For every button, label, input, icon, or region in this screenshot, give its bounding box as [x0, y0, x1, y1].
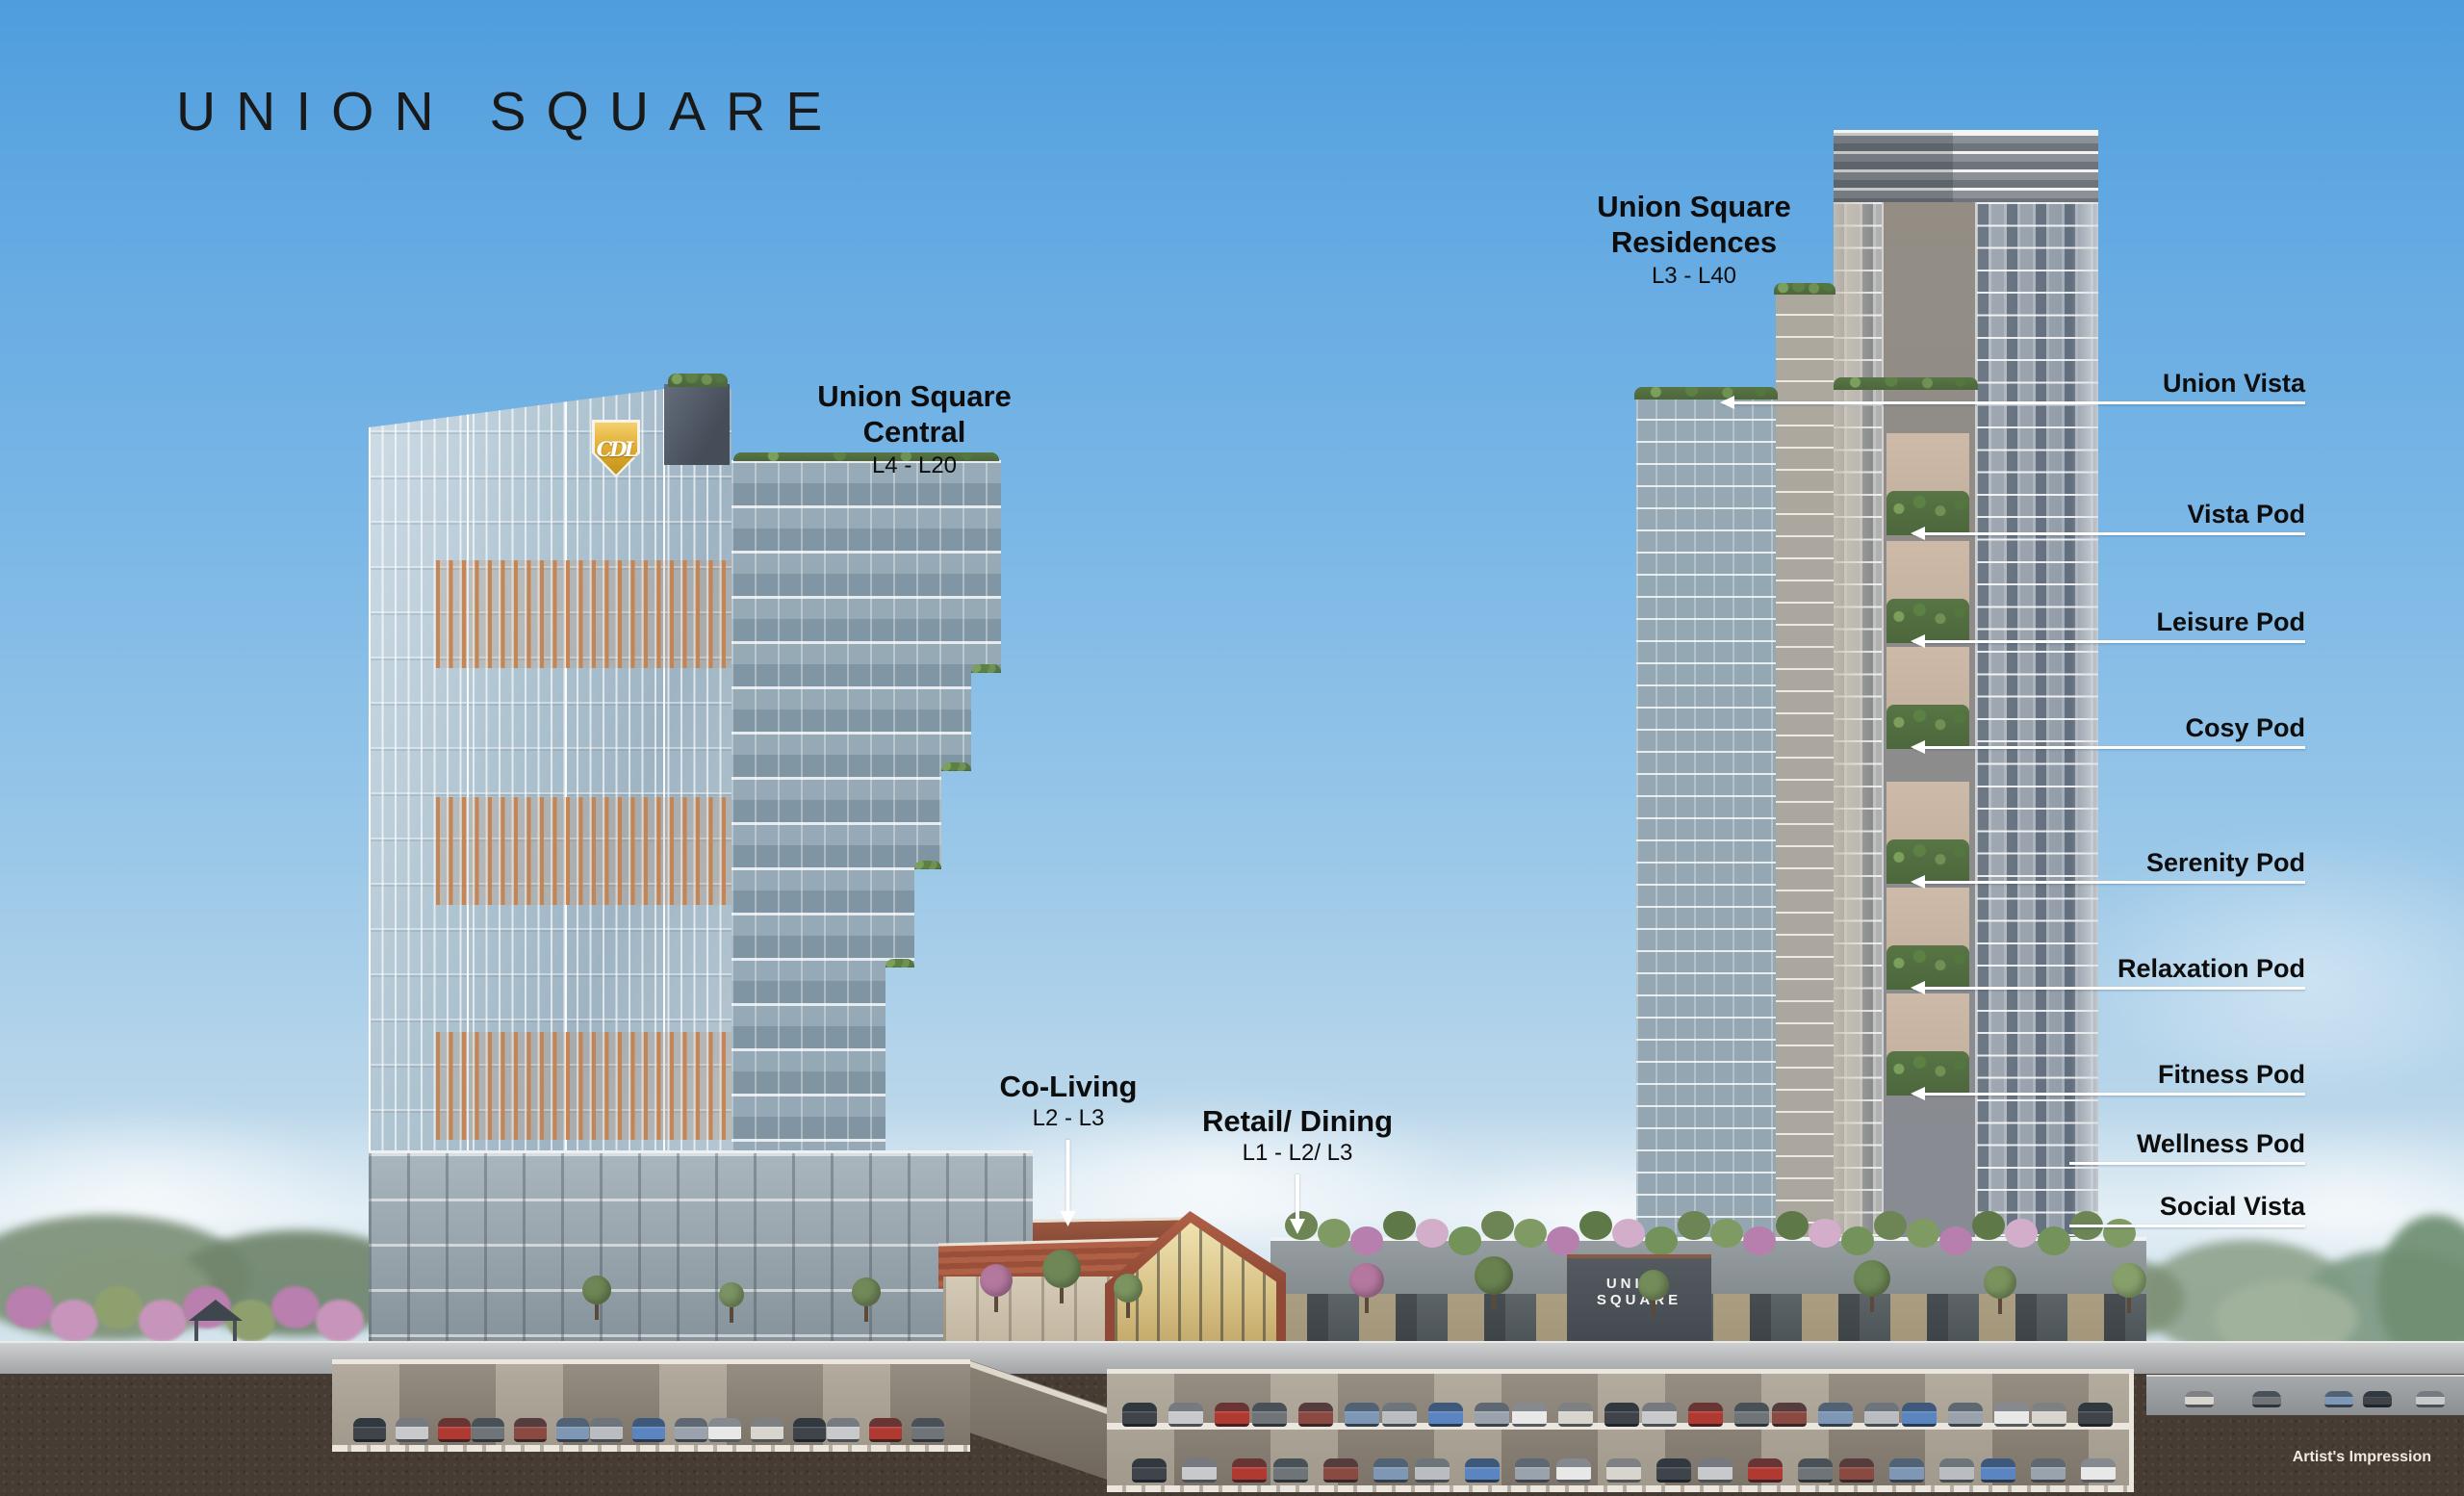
arrowhead-icon [1911, 875, 1925, 889]
artists-impression-watermark: Artist's Impression [2293, 1449, 2431, 1466]
callout-social-vista: Social Vista [2160, 1192, 2305, 1221]
arrowhead-icon [1911, 634, 1925, 648]
tree-crown [1475, 1256, 1513, 1295]
tree-crown [719, 1282, 744, 1307]
car [2363, 1391, 2392, 1407]
tree [852, 1277, 881, 1324]
car [869, 1418, 902, 1442]
tree-trunk [864, 1306, 868, 1322]
leader-line [1723, 401, 2305, 404]
car [1688, 1403, 1723, 1427]
leader-line [1913, 640, 2305, 643]
car [1748, 1458, 1783, 1483]
car [1475, 1403, 1509, 1427]
down-arrow-icon [1061, 1140, 1076, 1226]
car [1132, 1458, 1167, 1483]
car [1415, 1458, 1450, 1483]
terrace-garden [941, 762, 971, 771]
right-road [2146, 1375, 2464, 1415]
down-arrow-icon [1290, 1174, 1305, 1234]
car [2416, 1391, 2445, 1407]
tree [1475, 1256, 1513, 1312]
residences-low-wing [1636, 397, 1776, 1346]
car [1512, 1403, 1547, 1427]
car [2081, 1458, 2116, 1483]
leader-line [1913, 1093, 2305, 1096]
roof-garden-plant [1939, 1226, 1972, 1255]
tree-trunk [1126, 1303, 1130, 1318]
tree-crown [1854, 1260, 1890, 1297]
car [353, 1418, 386, 1442]
residences-mid-wing [1776, 292, 1834, 1346]
roof-garden-plant [2103, 1219, 2136, 1248]
callout-co-living: Co-Living L2 - L3 [1000, 1070, 1138, 1226]
car [1889, 1458, 1924, 1483]
tree-crown [980, 1264, 1013, 1297]
callout-union-vista: Union Vista [2163, 369, 2305, 398]
tree [1042, 1250, 1081, 1305]
callout-leisure-pod: Leisure Pod [2156, 607, 2305, 636]
car [793, 1418, 826, 1442]
car [590, 1418, 623, 1442]
car [1642, 1403, 1677, 1427]
roof-garden-plant [1972, 1211, 2005, 1240]
tree-trunk [2127, 1298, 2131, 1313]
car [1382, 1403, 1417, 1427]
tree [1984, 1266, 2016, 1316]
car [556, 1418, 589, 1442]
leader-line [2069, 1162, 2305, 1165]
roof-garden-plant [1841, 1226, 1874, 1255]
arrowhead-icon [1720, 396, 1734, 409]
car [2031, 1458, 2066, 1483]
roof-garden-plant [1809, 1219, 1841, 1248]
leader-line [1913, 532, 2305, 535]
residences-tower-illustration [1834, 130, 2098, 1254]
car [827, 1418, 860, 1442]
car [1864, 1403, 1899, 1427]
terrace-garden [971, 664, 1001, 673]
car [1345, 1403, 1379, 1427]
residences-tower-label: Union Square Residences L3 - L40 [1597, 189, 1791, 290]
car [675, 1418, 707, 1442]
blossom-bush [94, 1286, 142, 1328]
central-tower-label: Union Square Central L4 - L20 [817, 378, 1012, 479]
callout-fitness-pod: Fitness Pod [2158, 1060, 2305, 1089]
tree-trunk [595, 1304, 599, 1320]
tree [1114, 1274, 1142, 1320]
tree [1349, 1263, 1384, 1315]
car [2324, 1391, 2353, 1407]
car [1515, 1458, 1550, 1483]
blossom-bush [139, 1300, 187, 1342]
tree-trunk [1998, 1299, 2002, 1314]
car [1232, 1458, 1267, 1483]
callout-wellness-pod: Wellness Pod [2137, 1129, 2305, 1158]
car [1465, 1458, 1500, 1483]
roof-garden-plant [1612, 1219, 1645, 1248]
car [632, 1418, 665, 1442]
roof-garden-plant [1416, 1219, 1449, 1248]
car [1168, 1403, 1203, 1427]
callout-relaxation-pod: Relaxation Pod [2117, 954, 2305, 983]
roof-garden-plant [1514, 1219, 1547, 1248]
car [1273, 1458, 1308, 1483]
central-roof-plant-box [664, 384, 730, 465]
car [396, 1418, 428, 1442]
tree [980, 1264, 1013, 1314]
car [1981, 1458, 2015, 1483]
callout-vista-pod: Vista Pod [2187, 500, 2305, 529]
roof-garden-plant [1743, 1226, 1776, 1255]
car [1948, 1403, 1983, 1427]
car [2032, 1403, 2066, 1427]
page-title: UNION SQUARE [176, 80, 842, 143]
car [1994, 1403, 2029, 1427]
car [1839, 1458, 1874, 1483]
leader-line [1913, 881, 2305, 884]
callout-cosy-pod: Cosy Pod [2185, 713, 2305, 742]
car [1734, 1403, 1769, 1427]
basement-carpark-right [1107, 1369, 2134, 1492]
gazebo [189, 1300, 243, 1344]
car [2185, 1391, 2214, 1407]
tree-crown [1349, 1263, 1384, 1298]
car [1818, 1403, 1853, 1427]
tree-trunk [994, 1297, 998, 1312]
car [708, 1418, 741, 1442]
car [1656, 1458, 1691, 1483]
car [751, 1418, 783, 1442]
car [1604, 1403, 1639, 1427]
car [514, 1418, 547, 1442]
tree-crown [2112, 1263, 2146, 1298]
tree-trunk [1652, 1301, 1655, 1316]
tree [582, 1276, 611, 1322]
tree [719, 1282, 744, 1325]
artist-impression-canvas: CDL UNION SQUARE [0, 0, 2464, 1496]
roof-garden-plant [2005, 1219, 2038, 1248]
tree [1638, 1270, 1669, 1318]
roof-garden-plant [1776, 1211, 1809, 1240]
car [1298, 1403, 1333, 1427]
roof-garden-plant [1907, 1219, 1939, 1248]
basement-carpark-left [332, 1359, 970, 1452]
tree-trunk [1492, 1295, 1496, 1310]
roof-garden-plant [2038, 1226, 2070, 1255]
car [472, 1418, 504, 1442]
car [911, 1418, 944, 1442]
blossom-bush [6, 1286, 54, 1328]
blossom-bush [50, 1300, 98, 1342]
tree-trunk [1365, 1298, 1369, 1313]
car [1606, 1458, 1641, 1483]
blossom-bush [271, 1286, 320, 1328]
tree [2112, 1263, 2146, 1315]
garden-pod-column [1882, 202, 1977, 1254]
car [1122, 1403, 1157, 1427]
car [1373, 1458, 1408, 1483]
car [438, 1418, 471, 1442]
car [1902, 1403, 1937, 1427]
arrowhead-icon [1911, 981, 1925, 994]
terrace-garden [914, 861, 941, 869]
car [2078, 1403, 2113, 1427]
callout-retail-dining: Retail/ Dining L1 - L2/ L3 [1202, 1105, 1393, 1234]
cdl-monogram: CDL [597, 437, 636, 461]
tower-crown-louvres [1834, 133, 2098, 202]
car [1798, 1458, 1833, 1483]
car [1182, 1458, 1217, 1483]
tree-trunk [1870, 1297, 1874, 1312]
blossom-bush [316, 1300, 364, 1342]
arrowhead-icon [1911, 527, 1925, 540]
tree-crown [1984, 1266, 2016, 1299]
roof-garden-plant [1547, 1226, 1579, 1255]
car [1323, 1458, 1358, 1483]
roof-garden-plant [1481, 1211, 1514, 1240]
tree-trunk [1060, 1288, 1064, 1303]
tree-crown [1638, 1270, 1669, 1301]
roof-garden-plant [1678, 1211, 1710, 1240]
car [1556, 1458, 1591, 1483]
car [1428, 1403, 1463, 1427]
roof-garden-plant [1874, 1211, 1907, 1240]
arrowhead-icon [1911, 740, 1925, 754]
sky-terrace-garden [1634, 387, 1778, 400]
car [1558, 1403, 1593, 1427]
leader-line [1913, 987, 2305, 990]
terrace-garden [885, 959, 914, 967]
car [1772, 1403, 1807, 1427]
roof-garden-plant [1579, 1211, 1612, 1240]
arrowhead-icon [1911, 1087, 1925, 1100]
central-tower-podium [369, 1150, 1033, 1349]
leader-line [2069, 1225, 2305, 1227]
tree-crown [1042, 1250, 1081, 1288]
car [1215, 1403, 1249, 1427]
roof-garden-plant [1710, 1219, 1743, 1248]
roof-garden-plant [1645, 1226, 1678, 1255]
car [2252, 1391, 2281, 1407]
mid-roof-garden [1834, 377, 1978, 390]
tree-crown [582, 1276, 611, 1304]
rooftop-garden [668, 374, 728, 387]
car [1252, 1403, 1287, 1427]
tree-crown [852, 1277, 881, 1306]
tree [1854, 1260, 1890, 1314]
leader-line [1913, 746, 2305, 749]
car [1698, 1458, 1732, 1483]
tree-crown [1114, 1274, 1142, 1303]
tree-trunk [730, 1307, 733, 1323]
car [1939, 1458, 1974, 1483]
roof-garden-plant [1449, 1226, 1481, 1255]
callout-serenity-pod: Serenity Pod [2146, 848, 2305, 877]
